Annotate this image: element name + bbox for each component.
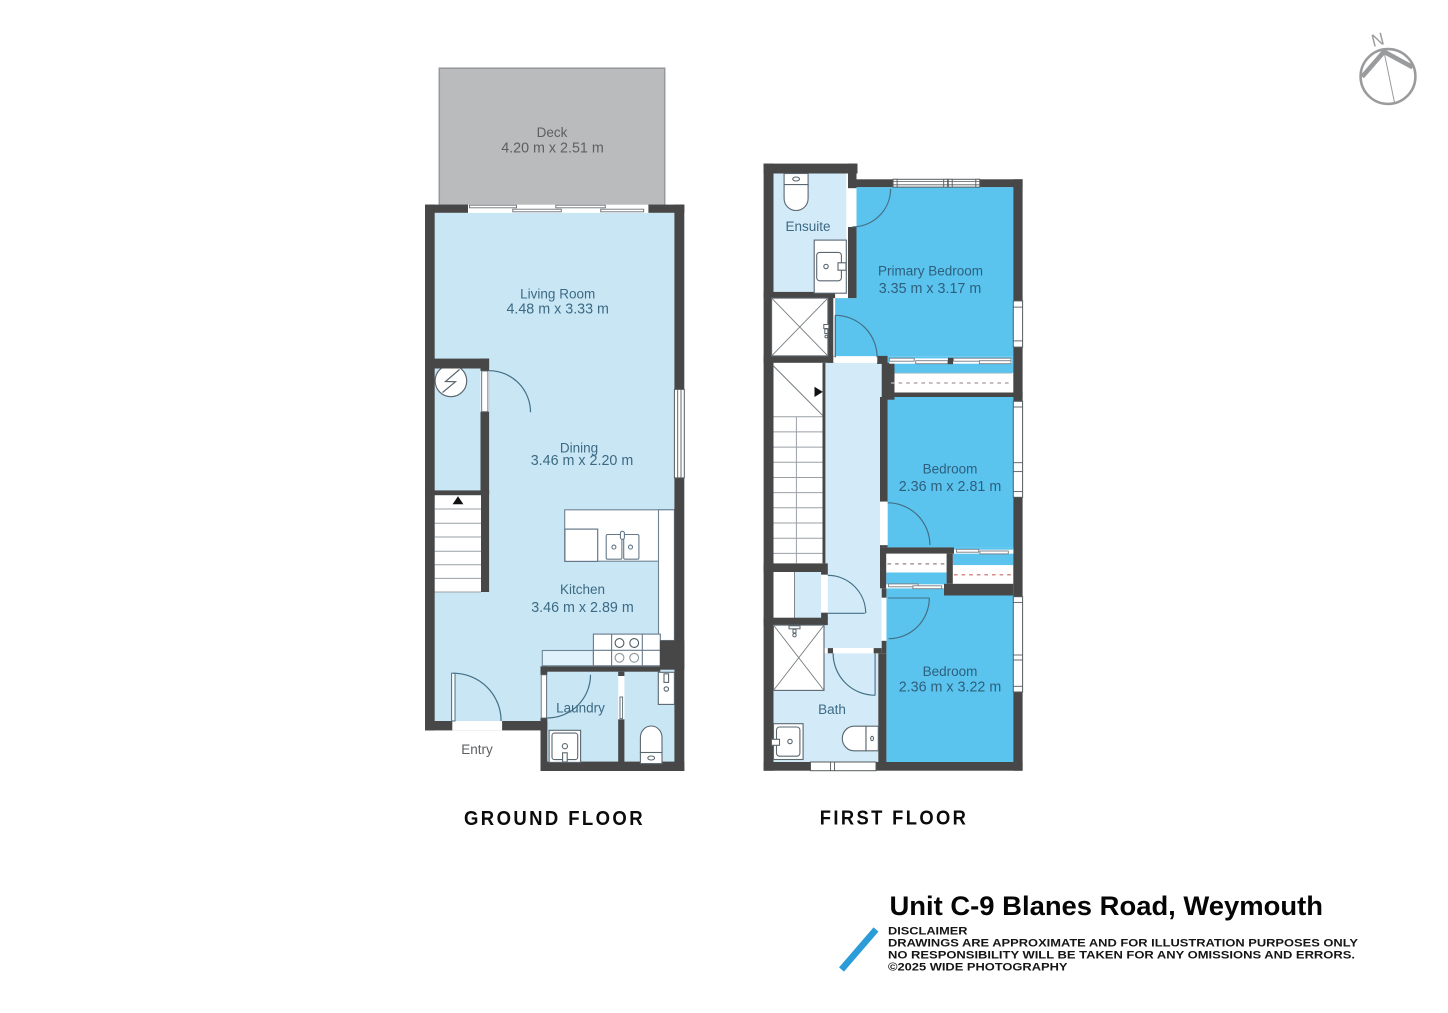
svg-text:Living Room: Living Room	[520, 287, 595, 302]
svg-text:FIRST FLOOR: FIRST FLOOR	[820, 808, 969, 830]
svg-text:DRAWINGS ARE APPROXIMATE AND F: DRAWINGS ARE APPROXIMATE AND FOR ILLUSTR…	[888, 938, 1359, 950]
svg-text:Laundry: Laundry	[556, 701, 605, 716]
svg-text:Bedroom: Bedroom	[923, 664, 978, 679]
svg-text:Primary Bedroom: Primary Bedroom	[878, 264, 983, 279]
svg-text:NO RESPONSIBILITY WILL BE TAKE: NO RESPONSIBILITY WILL BE TAKEN FOR ANY …	[888, 950, 1355, 962]
svg-text:Bath: Bath	[818, 702, 846, 717]
svg-text:Bedroom: Bedroom	[923, 462, 978, 477]
svg-text:4.20 m x 2.51 m: 4.20 m x 2.51 m	[501, 140, 604, 156]
svg-text:3.35 m x 3.17 m: 3.35 m x 3.17 m	[879, 281, 982, 297]
svg-text:GROUND FLOOR: GROUND FLOOR	[464, 808, 645, 830]
svg-text:DISCLAIMER: DISCLAIMER	[888, 925, 968, 937]
svg-text:4.48 m x 3.33 m: 4.48 m x 3.33 m	[506, 302, 609, 318]
svg-text:2.36 m x 2.81 m: 2.36 m x 2.81 m	[899, 479, 1002, 495]
svg-text:3.46 m x 2.20 m: 3.46 m x 2.20 m	[531, 453, 634, 469]
svg-text:Kitchen: Kitchen	[560, 582, 605, 597]
svg-text:Entry: Entry	[461, 742, 493, 757]
svg-text:©2025 WIDE PHOTOGRAPHY: ©2025 WIDE PHOTOGRAPHY	[888, 962, 1068, 974]
svg-text:Unit C-9 Blanes Road, Weymouth: Unit C-9 Blanes Road, Weymouth	[890, 891, 1324, 921]
svg-text:Deck: Deck	[537, 125, 568, 140]
svg-text:2.36 m x 3.22 m: 2.36 m x 3.22 m	[899, 680, 1002, 696]
svg-text:3.46 m x 2.89 m: 3.46 m x 2.89 m	[531, 600, 634, 616]
svg-text:Ensuite: Ensuite	[785, 219, 830, 234]
